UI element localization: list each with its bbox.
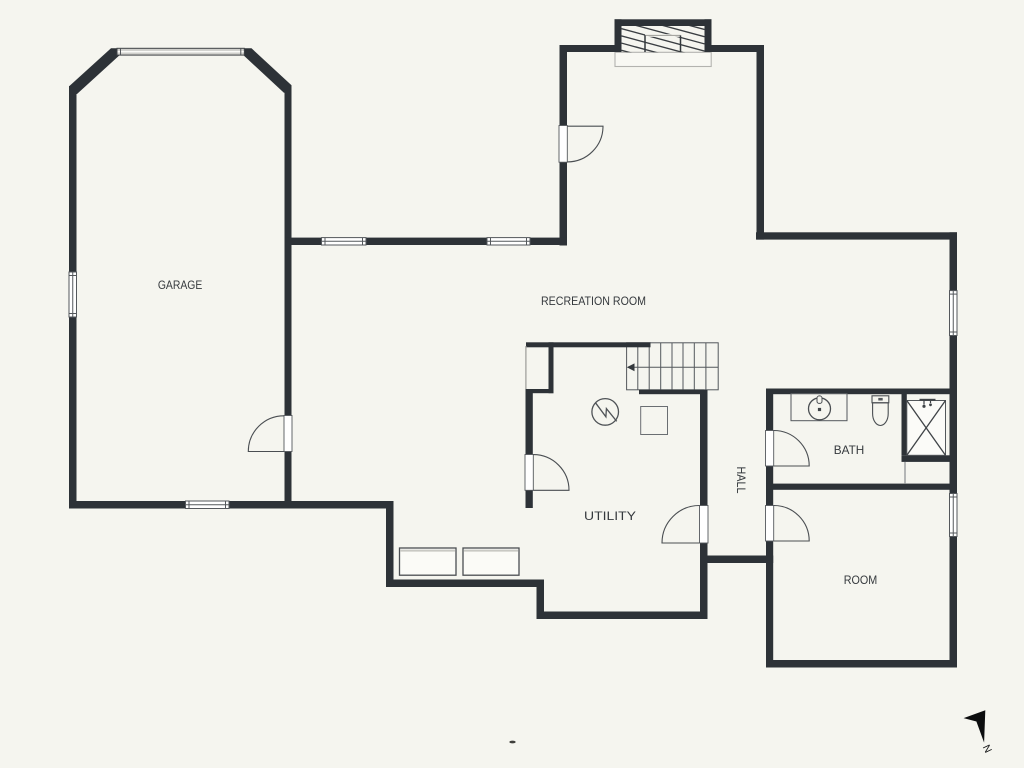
- svg-text:ROOM: ROOM: [844, 573, 878, 587]
- svg-text:UTILITY: UTILITY: [584, 509, 636, 523]
- svg-text:HALL: HALL: [734, 467, 748, 494]
- svg-text:GARAGE: GARAGE: [158, 278, 203, 292]
- svg-text:RECREATION ROOM: RECREATION ROOM: [541, 294, 646, 308]
- svg-text:BATH: BATH: [834, 443, 865, 457]
